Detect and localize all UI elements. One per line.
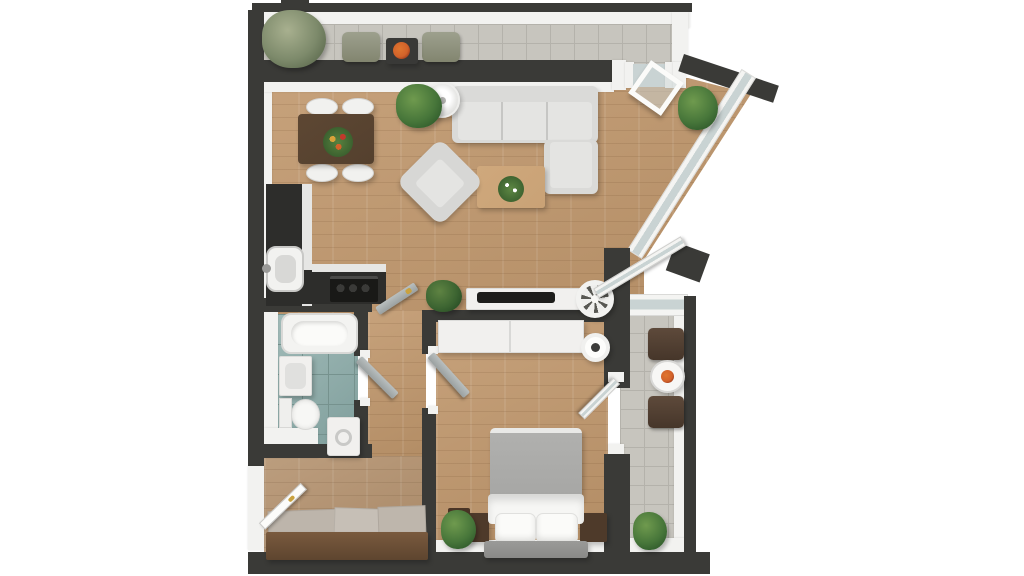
bed-duvet	[490, 428, 582, 502]
entry-shoe-cabinet	[266, 532, 428, 560]
top-edge-planter	[281, 0, 309, 5]
bedroom-round-lamp	[581, 333, 610, 362]
door-handle	[405, 287, 413, 294]
potted-plant	[633, 512, 667, 550]
potted-plant	[441, 510, 476, 549]
bed-door-frame-bottom	[428, 406, 438, 414]
right-balcony-top-glazing	[626, 294, 688, 316]
sofa-chaise-cushion	[550, 142, 592, 188]
washing-machine	[327, 417, 360, 456]
wardrobe	[438, 320, 584, 353]
right-balcony-outer-wall	[684, 296, 696, 558]
entrance-door-frame	[248, 466, 264, 550]
potted-plant	[396, 84, 442, 128]
nightstand	[580, 513, 607, 542]
balcony-chair	[648, 396, 684, 428]
wall-end-cap	[612, 60, 626, 90]
top-balcony-floor	[262, 24, 688, 64]
bed-headboard	[484, 541, 588, 558]
balcony-door-frame-bottom	[608, 444, 624, 454]
bath-door-frame-bottom	[360, 398, 370, 406]
kitchen-counter-edge-top	[312, 264, 386, 272]
pillow	[495, 513, 536, 544]
hallway-floor	[368, 310, 426, 462]
potted-plant	[426, 280, 462, 312]
sink-faucet	[262, 264, 271, 273]
washbasin-bowl	[285, 363, 306, 389]
potted-plant	[262, 10, 326, 68]
balcony-chair	[648, 328, 684, 360]
bedroom-right-wall-lower	[604, 454, 630, 558]
toilet-bowl	[291, 399, 320, 430]
lamp-center	[591, 343, 600, 352]
table-flowers	[661, 370, 674, 383]
balcony-chair	[422, 32, 460, 62]
balcony-chair	[342, 32, 380, 62]
sofa-seat-cushions	[458, 102, 592, 140]
washbasin	[279, 356, 312, 396]
flower-pot	[393, 42, 410, 59]
table-flowers	[323, 127, 353, 157]
cooktop	[330, 276, 378, 302]
balcony-round-table	[650, 360, 685, 393]
bathtub-basin	[291, 321, 348, 346]
floor-plan-render	[0, 0, 1024, 576]
sink-basin	[275, 255, 296, 283]
armchair-cushion	[415, 158, 466, 209]
top-railing-wall	[252, 3, 692, 12]
washing-machine-door	[335, 429, 352, 446]
dining-chair	[342, 164, 374, 182]
coffee-table-plant	[498, 176, 524, 202]
potted-plant	[678, 86, 718, 130]
bathtub	[281, 313, 358, 354]
pillow	[536, 513, 578, 544]
entrance-door-handle	[288, 495, 296, 503]
dining-chair	[306, 164, 338, 182]
kitchen-sink	[266, 246, 304, 292]
tv	[477, 292, 555, 303]
